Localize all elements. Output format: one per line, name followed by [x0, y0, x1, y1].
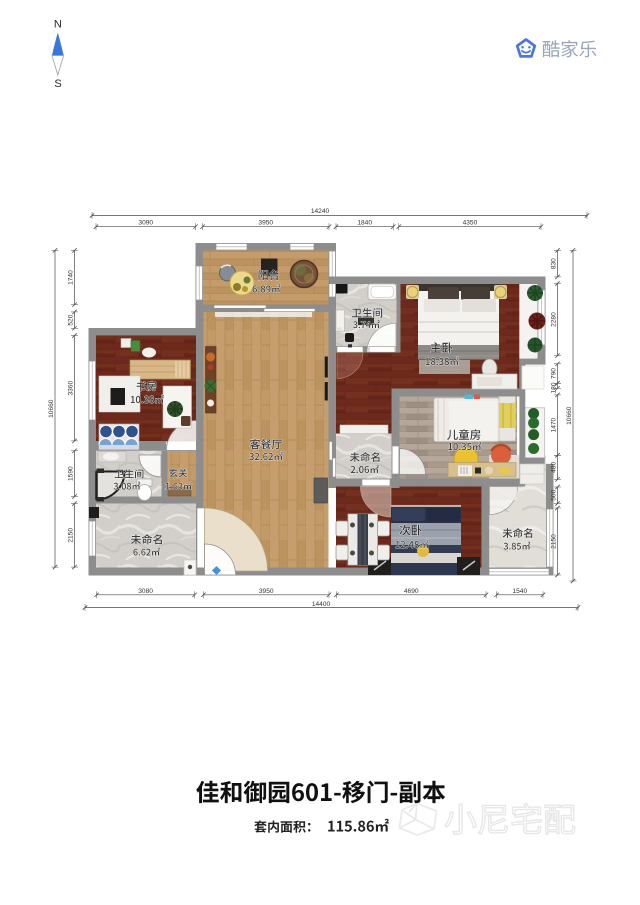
svg-text:14240: 14240: [311, 208, 330, 215]
svg-text:3080: 3080: [138, 588, 153, 595]
svg-text:2150: 2150: [550, 534, 557, 549]
svg-text:10660: 10660: [48, 399, 55, 418]
svg-text:S: S: [54, 78, 61, 90]
svg-text:4690: 4690: [404, 588, 419, 595]
svg-text:2280: 2280: [550, 312, 557, 327]
svg-text:1590: 1590: [67, 466, 74, 481]
svg-text:3950: 3950: [258, 220, 273, 227]
svg-text:10660: 10660: [566, 406, 573, 425]
svg-text:3360: 3360: [67, 381, 74, 396]
svg-text:500: 500: [550, 489, 557, 500]
svg-text:N: N: [54, 19, 62, 31]
svg-text:3950: 3950: [259, 588, 274, 595]
svg-text:180: 180: [550, 382, 557, 393]
svg-text:14400: 14400: [312, 601, 331, 608]
svg-text:3090: 3090: [138, 220, 153, 227]
svg-text:4350: 4350: [463, 220, 478, 227]
svg-text:790: 790: [550, 368, 557, 379]
svg-text:1840: 1840: [357, 220, 372, 227]
svg-text:520: 520: [67, 314, 74, 325]
svg-text:2150: 2150: [67, 528, 74, 543]
svg-text:830: 830: [550, 258, 557, 269]
svg-text:1470: 1470: [550, 417, 557, 432]
svg-text:480: 480: [550, 462, 557, 473]
svg-text:1540: 1540: [512, 588, 527, 595]
svg-text:1740: 1740: [67, 270, 74, 285]
